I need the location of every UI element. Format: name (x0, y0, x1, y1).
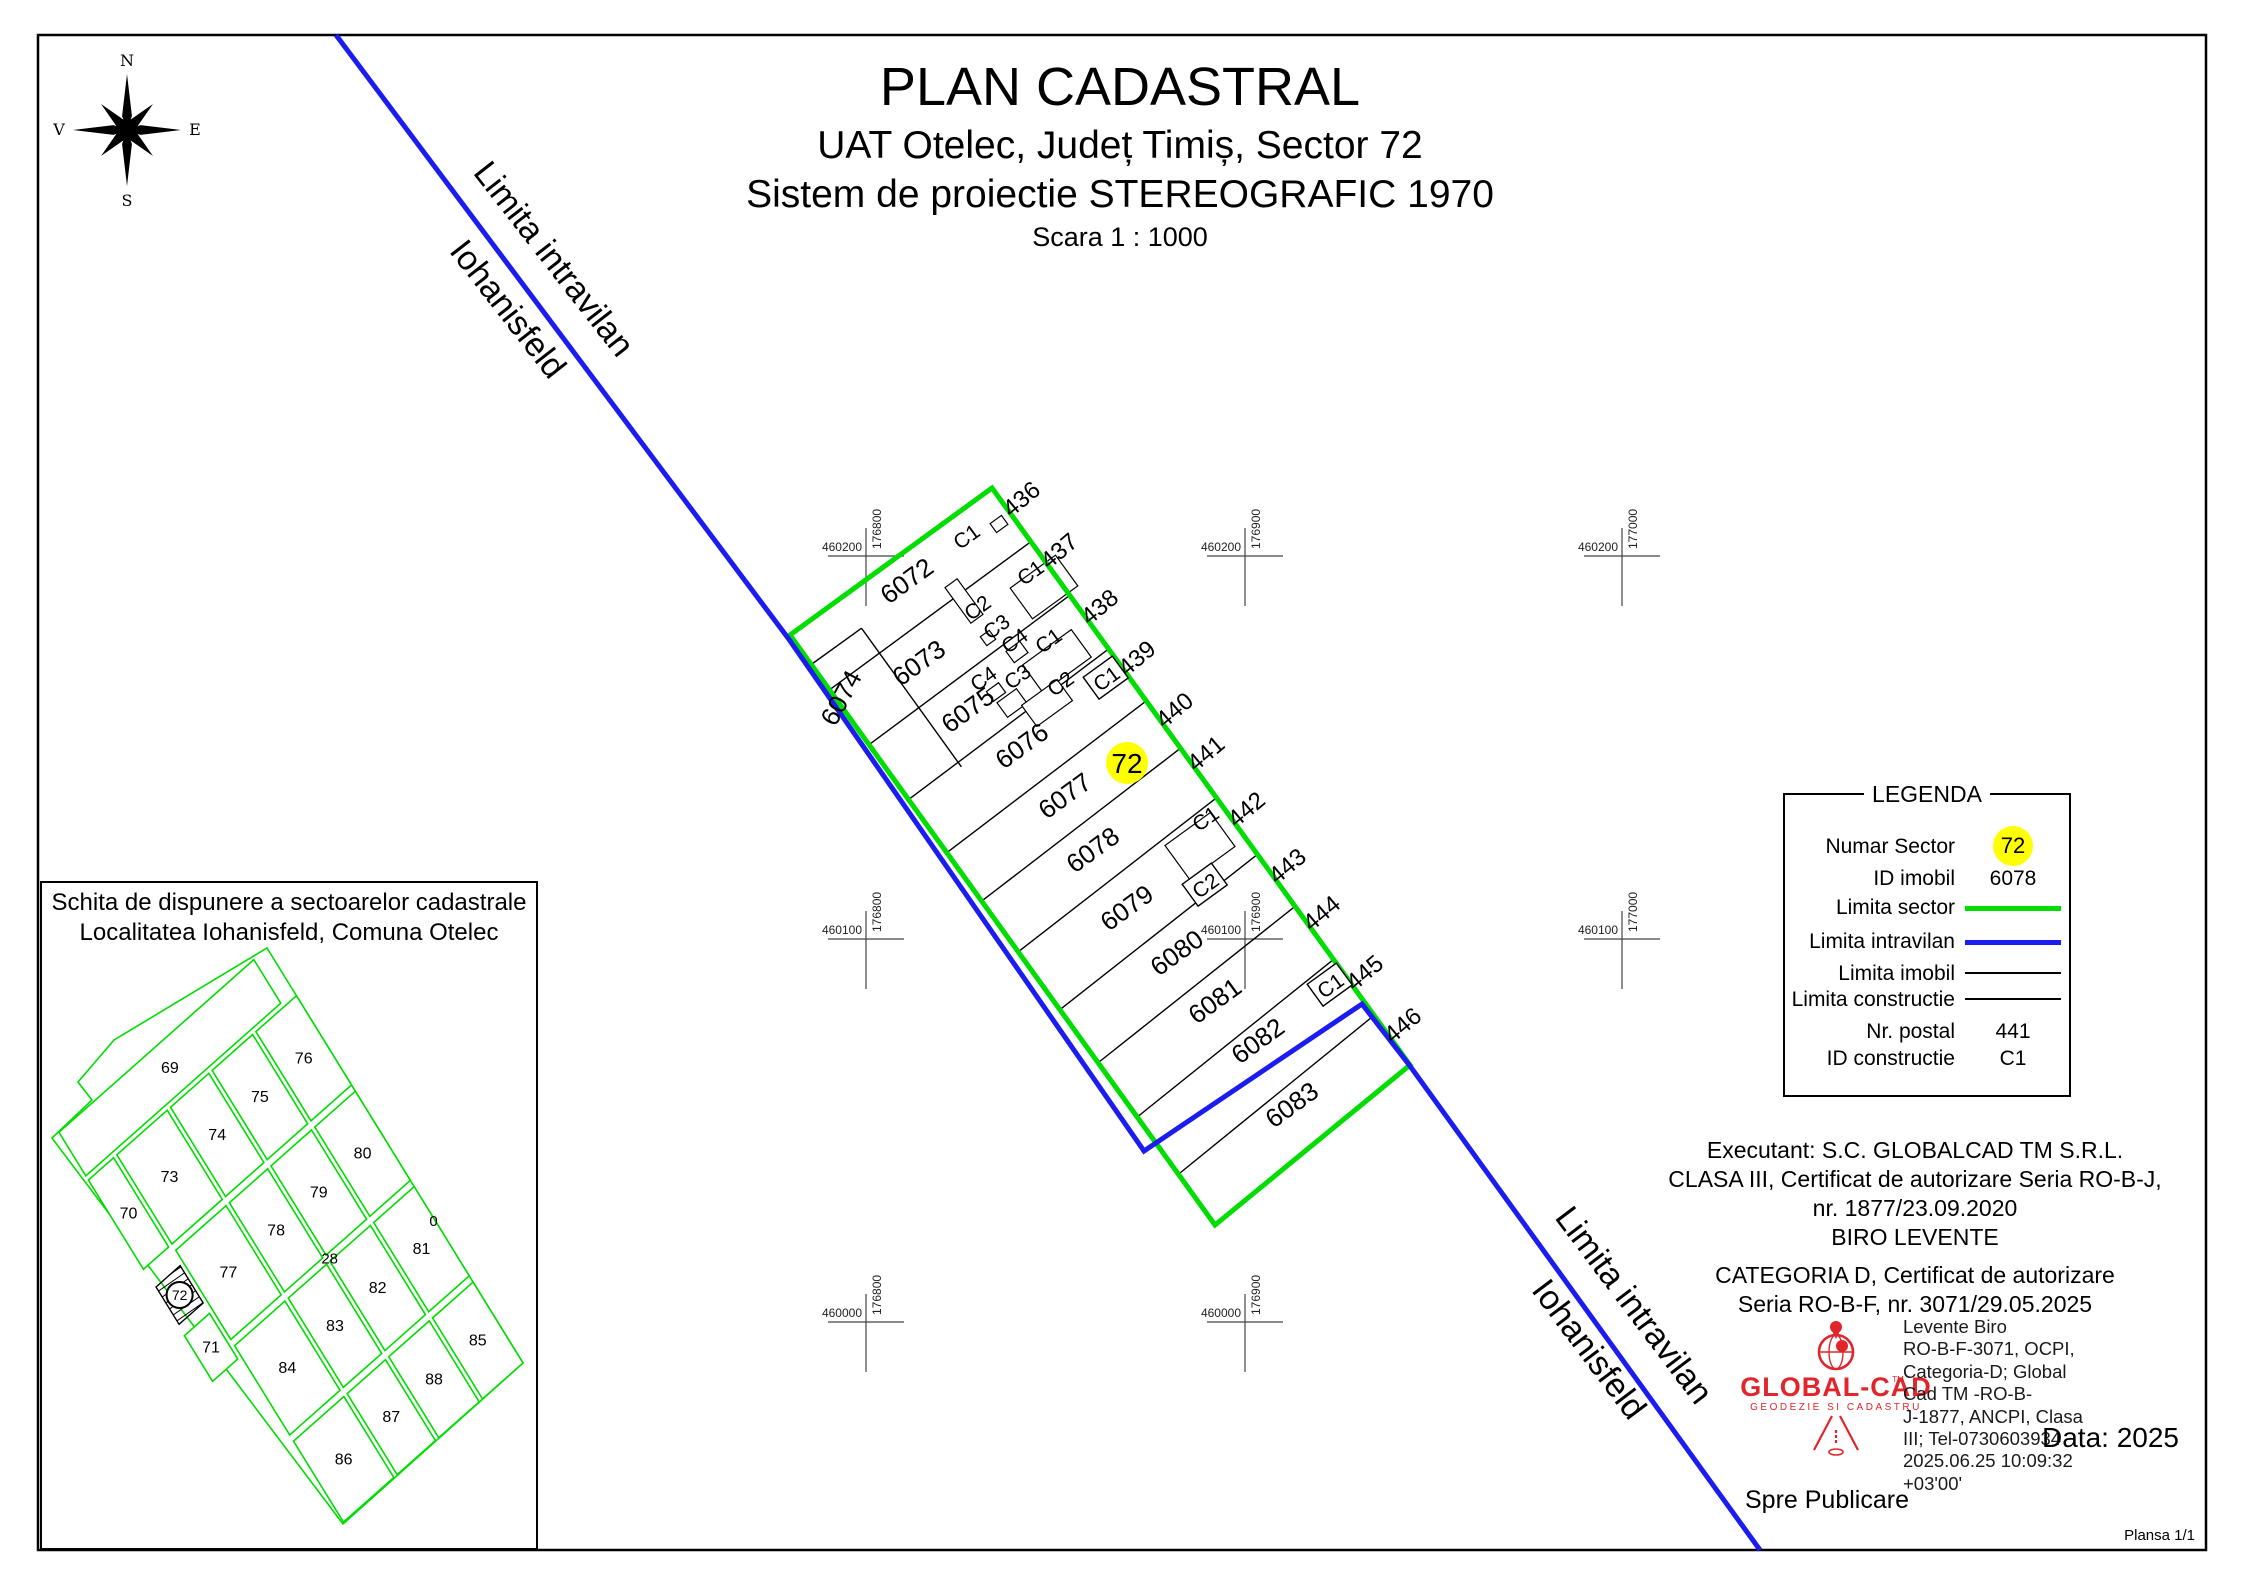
inset-title-line2: Localitatea Iohanisfeld, Comuna Otelec (41, 918, 537, 948)
grid-y-label: 176900 (1249, 509, 1263, 549)
legend-row: ID imobil6078 (1785, 864, 2069, 894)
inset-sector-number: 73 (161, 1169, 179, 1186)
inset-sector-number: 0 (429, 1213, 437, 1230)
legend-line-sample (1965, 972, 2061, 974)
grid-cross: 460100176800 (822, 892, 904, 989)
grid-y-label: 176900 (1249, 892, 1263, 932)
legend-row-label: Nr. postal (1785, 1020, 1955, 1044)
grid-cross: 460000176900 (1201, 1275, 1283, 1372)
sector-number-badge: 72 (1106, 742, 1148, 784)
grid-x-label: 460100 (822, 923, 862, 937)
logo-globe-land (1836, 1340, 1848, 1352)
inset-sector-number: 77 (220, 1265, 238, 1282)
legend-row-value: C1 (1963, 1047, 2063, 1071)
legend-row: Limita constructie (1785, 985, 2069, 1015)
grid-x-label: 460200 (822, 540, 862, 554)
inset-title-line1: Schita de dispunere a sectoarelor cadast… (41, 888, 537, 918)
grid-cross: 460200176900 (1201, 509, 1283, 606)
executant-line: Executant: S.C. GLOBALCAD TM S.R.L. (1625, 1136, 2205, 1165)
date-label: Data: 2025 (2042, 1422, 2179, 1454)
page-subtitle: UAT Otelec, Județ Timiș, Sector 72 (620, 124, 1620, 169)
legend-row-value: 441 (1963, 1020, 2063, 1044)
sector-number-text: 72 (1111, 748, 1142, 779)
grid-y-label: 176800 (870, 892, 884, 932)
legend-row: ID constructieC1 (1785, 1044, 2069, 1074)
grid-cross: 460200177000 (1578, 509, 1660, 606)
logo-tripod-leg (1840, 1416, 1858, 1450)
logo-tripod-leg (1814, 1416, 1832, 1450)
inset-sector-number: 86 (335, 1451, 353, 1468)
cadastral-plan-page: NSEV460200176800460200176900460200177000… (0, 0, 2246, 1588)
inset-sector-number: 87 (382, 1409, 400, 1426)
compass-south-label: S (122, 191, 133, 210)
inset-sector-number: 28 (321, 1250, 338, 1267)
signature-line: +03'00' (1903, 1473, 2163, 1495)
legend-row-label: Limita sector (1785, 896, 1955, 920)
legend-row: Limita sector (1785, 893, 2069, 923)
grid-x-label: 460100 (1578, 923, 1618, 937)
compass-west-label: V (52, 120, 65, 139)
inset-sector-number: 78 (267, 1222, 285, 1239)
logo-tagline: GEODEZIE SI CADASTRU (1750, 1402, 1922, 1413)
inset-sector-number: 70 (120, 1205, 138, 1222)
inset-sector-number: 81 (413, 1241, 431, 1258)
legend-row: Limita intravilan (1785, 927, 2069, 957)
legend: LEGENDA Numar Sector72ID imobil6078Limit… (1783, 793, 2071, 1097)
inset-sector-number: 74 (208, 1127, 226, 1144)
legend-row-label: Limita constructie (1785, 988, 1955, 1012)
inset-sector-number: 80 (354, 1146, 372, 1163)
executant-line: CLASA III, Certificat de autorizare Seri… (1625, 1165, 2205, 1194)
inset-sector-number: 82 (369, 1280, 387, 1297)
inset-sector-number: 88 (425, 1371, 443, 1388)
compass-hub (123, 126, 131, 134)
compass-north-label: N (120, 51, 134, 70)
logo-tripod-base (1829, 1449, 1843, 1455)
grid-y-label: 176800 (870, 509, 884, 549)
inset-sector-number: 84 (278, 1360, 296, 1377)
inset-sector-number: 79 (310, 1185, 328, 1202)
grid-x-label: 460100 (1201, 923, 1241, 937)
inset-sector-number: 75 (251, 1089, 269, 1106)
compass-rose: NSEV (52, 51, 201, 210)
legend-title: LEGENDA (1864, 781, 1990, 808)
legend-row-label: Limita intravilan (1785, 930, 1955, 954)
inset-sector-number: 83 (326, 1318, 344, 1335)
digital-signature-text: Levente BiroRO-B-F-3071, OCPI,Categoria-… (1903, 1316, 2163, 1495)
projection-label: Sistem de proiectie STEREOGRAFIC 1970 (620, 173, 1620, 218)
scale-label: Scara 1 : 1000 (620, 222, 1620, 253)
legend-row: Nr. postal441 (1785, 1017, 2069, 1047)
grid-cross: 460000176800 (822, 1275, 904, 1372)
legend-row-label: Numar Sector (1785, 835, 1955, 859)
grid-x-label: 460200 (1578, 540, 1618, 554)
executant-line: BIRO LEVENTE (1625, 1223, 2205, 1252)
legend-row-label: ID constructie (1785, 1047, 1955, 1071)
inset-current-sector-number: 72 (172, 1287, 188, 1303)
legend-row-value: 6078 (1963, 867, 2063, 891)
signature-line: Cad TM -RO-B- (1903, 1383, 2163, 1405)
grid-y-label: 177000 (1626, 509, 1640, 549)
legend-line-sample (1965, 906, 2061, 911)
executant-line: nr. 1877/23.09.2020 (1625, 1194, 2205, 1223)
inset-sector-number: 85 (469, 1332, 487, 1349)
signature-line: RO-B-F-3071, OCPI, (1903, 1338, 2163, 1360)
compass-east-label: E (189, 120, 201, 139)
sheet-number-label: Plansa 1/1 (2085, 1527, 2195, 1544)
page-title: PLAN CADASTRAL (620, 56, 1620, 118)
legend-line-sample (1965, 998, 2061, 1000)
grid-y-label: 176800 (870, 1275, 884, 1315)
legend-sector-badge: 72 (1993, 826, 2033, 866)
signature-line: Levente Biro (1903, 1316, 2163, 1338)
grid-x-label: 460000 (822, 1306, 862, 1320)
legend-row-label: Limita imobil (1785, 962, 1955, 986)
legend-row: Numar Sector72 (1785, 832, 2069, 862)
executant-line: Seria RO-B-F, nr. 3071/29.05.2025 (1625, 1290, 2205, 1319)
inset-sector-number: 76 (295, 1050, 313, 1067)
executant-line: CATEGORIA D, Certificat de autorizare (1625, 1261, 2205, 1290)
grid-y-label: 176900 (1249, 1275, 1263, 1315)
title-block: PLAN CADASTRAL UAT Otelec, Județ Timiș, … (620, 56, 1620, 253)
spre-publicare-label: Spre Publicare (1745, 1486, 1909, 1515)
grid-x-label: 460000 (1201, 1306, 1241, 1320)
signature-line: Categoria-D; Global (1903, 1361, 2163, 1383)
inset-title: Schita de dispunere a sectoarelor cadast… (41, 888, 537, 948)
legend-row-label: ID imobil (1785, 867, 1955, 891)
legend-line-sample (1965, 940, 2061, 945)
grid-y-label: 177000 (1626, 892, 1640, 932)
grid-cross: 460100177000 (1578, 892, 1660, 989)
executant-block: Executant: S.C. GLOBALCAD TM S.R.L.CLASA… (1625, 1136, 2205, 1319)
inset-sector-number: 71 (202, 1339, 220, 1356)
grid-x-label: 460200 (1201, 540, 1241, 554)
inset-sector-number: 69 (161, 1060, 179, 1077)
